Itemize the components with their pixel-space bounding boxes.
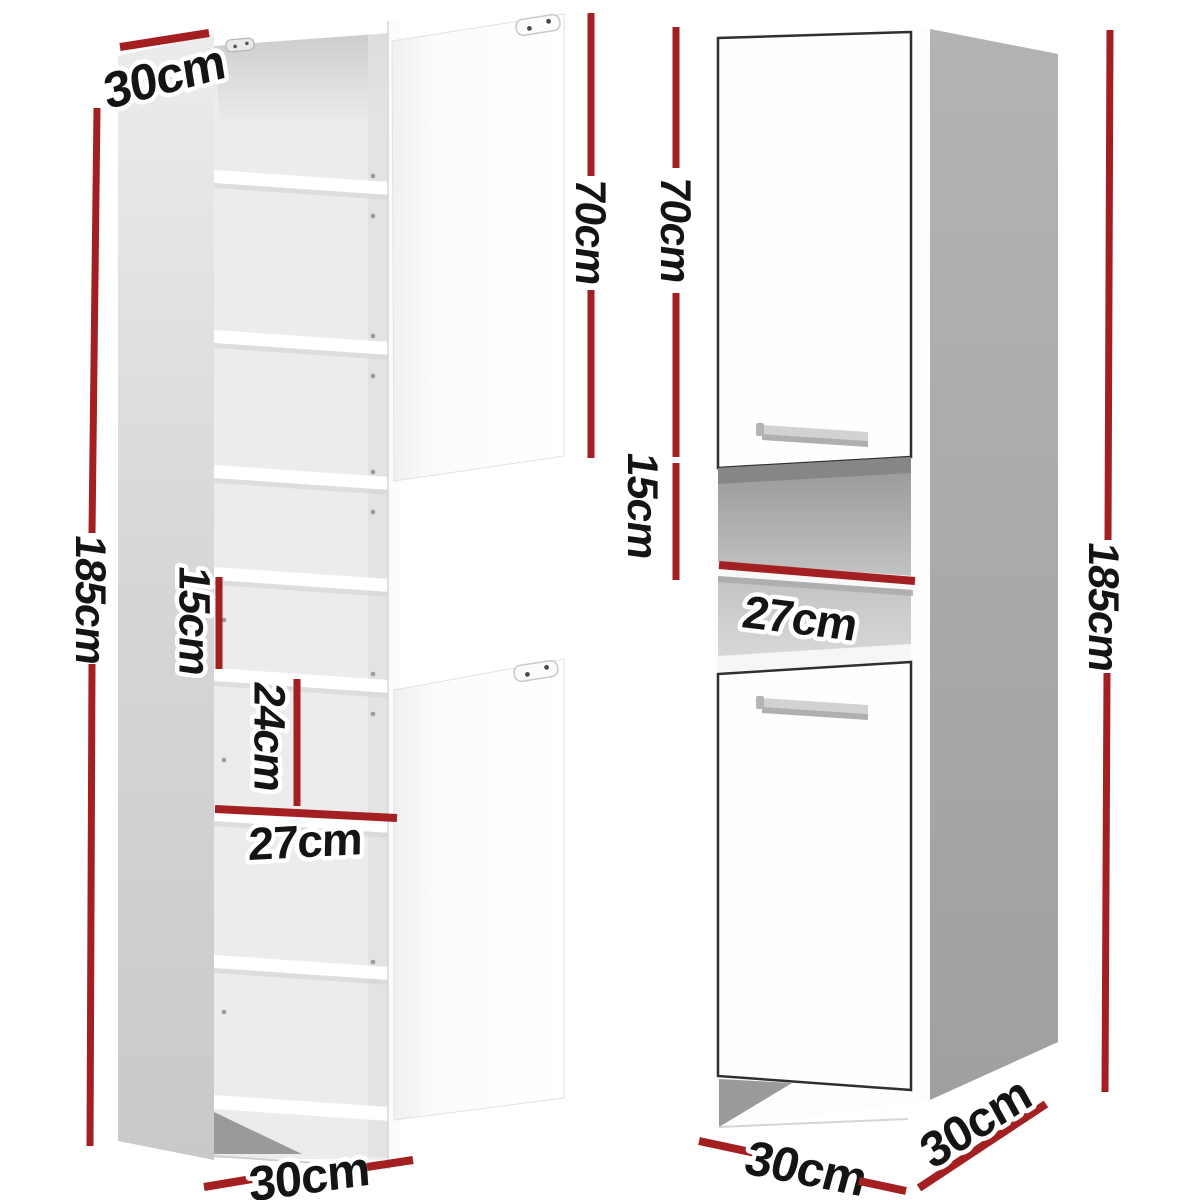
left-top-door-open [392,14,564,481]
dim-line-left-base-width-a [204,1179,252,1187]
dim-label-left-height: 185cm [66,532,114,668]
right-bottom-door [718,662,911,1090]
dim-label-right-base-width: 30cm [739,1131,872,1200]
handle-endcap [756,696,764,709]
dim-line-right-height-bottom [1105,673,1107,1092]
door-panel [394,659,564,1120]
diagram-canvas: 30cm 185cm 70cm 15cm 24cm 27cm 30cm 70cm… [0,0,1200,1200]
right-top-door [718,32,911,468]
dim-label-left-gap-small: 15cm [170,563,219,678]
dim-label-left-inner-width: 27cm [248,812,362,870]
dim-label-left-gap-medium: 24cm [245,679,294,794]
dim-label-left-door-height: 70cm [566,176,614,289]
dim-line-right-base-width-b [859,1181,906,1191]
dim-label-right-niche-height: 15cm [618,450,666,563]
left-bottom-door-open [394,659,564,1120]
dim-line-left-height-top [92,108,97,533]
dim-line-left-base-width-b [367,1160,413,1167]
interior-hinge-mark [226,38,255,52]
cabinet-dimensions-diagram: 30cm 185cm 70cm 15cm 24cm 27cm 30cm 70cm… [0,0,1200,1200]
dim-label-right-door-height: 70cm [651,174,699,287]
dim-label-right-height: 185cm [1079,539,1127,675]
dim-line-right-base-width-a [699,1141,755,1153]
dim-line-left-height-bottom [90,664,92,1146]
dim-line-right-height-top [1108,30,1110,540]
right-side-panel [930,29,1058,1100]
door-panel [392,14,564,481]
handle-endcap [756,423,764,436]
